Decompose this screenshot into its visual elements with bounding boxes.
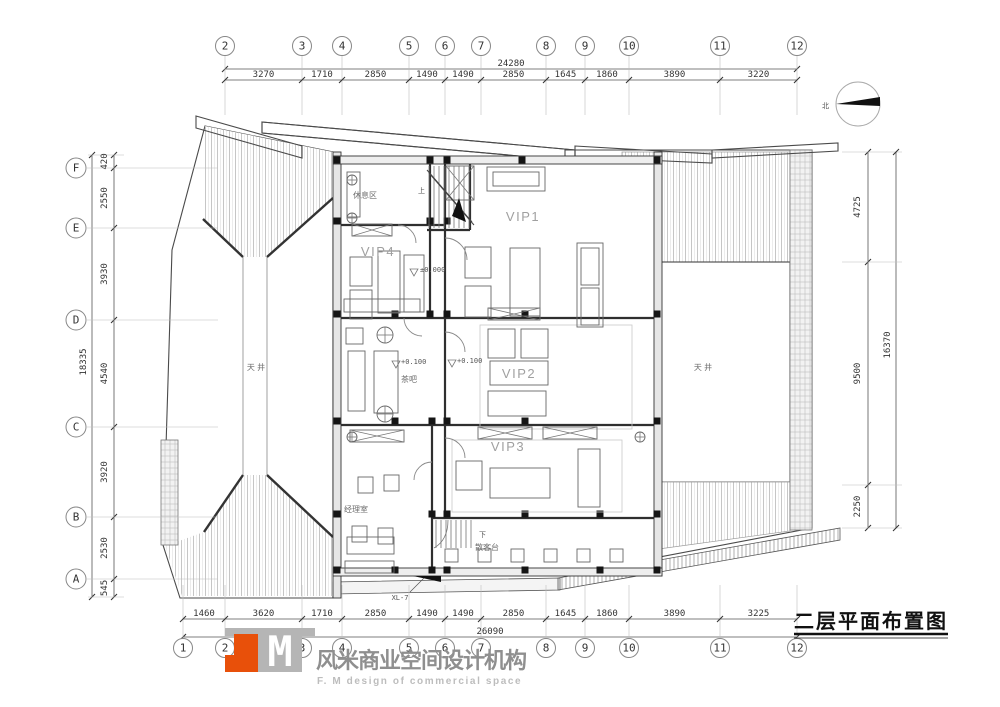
dim-bottom-4: 1490 bbox=[416, 609, 438, 619]
column bbox=[427, 218, 434, 225]
dim-top-0: 3270 bbox=[253, 70, 275, 80]
dim-bottom-overall: 26090 bbox=[476, 627, 503, 637]
axis-label-bottom-12: 12 bbox=[790, 642, 803, 655]
axis-label-top-11: 11 bbox=[713, 40, 726, 53]
dim-bottom-1: 3620 bbox=[253, 609, 275, 619]
dim-left-overall: 18335 bbox=[79, 348, 89, 375]
axis-label-top-4: 4 bbox=[339, 40, 346, 53]
column bbox=[334, 511, 341, 518]
axis-label-top-8: 8 bbox=[543, 40, 550, 53]
axis-label-bottom-8: 8 bbox=[543, 642, 550, 655]
wall-bottom bbox=[333, 568, 662, 576]
axis-label-top-9: 9 bbox=[582, 40, 589, 53]
dim-bottom-9: 3890 bbox=[664, 609, 686, 619]
dim-top-6: 1645 bbox=[555, 70, 577, 80]
column bbox=[444, 157, 451, 164]
column bbox=[334, 567, 341, 574]
dim-right-1: 9500 bbox=[853, 363, 863, 385]
room-label-rest-area: 休息区 bbox=[353, 190, 377, 200]
column bbox=[444, 418, 451, 425]
dim-left-4: 3920 bbox=[100, 461, 110, 483]
dim-top-3: 1490 bbox=[416, 70, 438, 80]
dim-top-4: 1490 bbox=[452, 70, 474, 80]
dim-top-overall: 24280 bbox=[497, 59, 524, 69]
axis-label-top-2: 2 bbox=[222, 40, 229, 53]
dim-bottom-0: 1460 bbox=[193, 609, 215, 619]
column bbox=[597, 567, 604, 574]
dim-top-1: 1710 bbox=[311, 70, 333, 80]
axis-label-left-C: C bbox=[73, 421, 80, 434]
left-roof-edge-band bbox=[161, 440, 178, 545]
column bbox=[519, 157, 526, 164]
column bbox=[392, 311, 399, 318]
axis-label-top-3: 3 bbox=[299, 40, 306, 53]
logo-company-name-cn: 风米商业空间设计机构 bbox=[316, 648, 527, 673]
column bbox=[334, 311, 341, 318]
dim-left-6: 545 bbox=[100, 580, 110, 596]
left-roof bbox=[161, 126, 333, 598]
dim-bottom-2: 1710 bbox=[311, 609, 333, 619]
right-roof-edge-band bbox=[790, 150, 812, 530]
axis-label-bottom-10: 10 bbox=[622, 642, 635, 655]
level-annotation-1: +0.100 bbox=[401, 358, 426, 366]
dim-top-5: 2850 bbox=[503, 70, 525, 80]
room-label-tea-bar: 茶吧 bbox=[401, 374, 417, 384]
axis-label-left-A: A bbox=[73, 573, 80, 586]
column bbox=[392, 418, 399, 425]
column bbox=[427, 157, 434, 164]
dim-left-3: 4540 bbox=[100, 363, 110, 385]
level-annotation-2: +0.100 bbox=[457, 357, 482, 365]
column bbox=[654, 157, 661, 164]
room-label-vip3: VIP3 bbox=[491, 439, 525, 454]
wall-top bbox=[333, 156, 662, 164]
dim-right-0: 4725 bbox=[853, 196, 863, 218]
room-label-vip2: VIP2 bbox=[502, 366, 536, 381]
stair-down-label: 下 bbox=[479, 531, 486, 539]
axis-label-left-B: B bbox=[73, 511, 80, 524]
logo-f-foot bbox=[225, 655, 235, 672]
dim-right-overall: 16370 bbox=[883, 331, 893, 358]
column bbox=[654, 511, 661, 518]
axis-label-bottom-9: 9 bbox=[582, 642, 589, 655]
drawing-title: 二层平面布置图 bbox=[794, 609, 948, 633]
column bbox=[444, 311, 451, 318]
axis-label-top-6: 6 bbox=[442, 40, 449, 53]
dim-top-9: 3220 bbox=[748, 70, 770, 80]
column bbox=[444, 511, 451, 518]
dim-left-1: 2550 bbox=[100, 187, 110, 209]
stair-up-label: 上 bbox=[418, 186, 425, 195]
column bbox=[654, 567, 661, 574]
north-arrow: 北 bbox=[822, 82, 880, 126]
axis-label-left-D: D bbox=[73, 314, 80, 327]
column bbox=[429, 511, 436, 518]
axis-label-top-5: 5 bbox=[406, 40, 413, 53]
room-label-vip1: VIP1 bbox=[506, 209, 540, 224]
room-label-walkin-counter: 散客台 bbox=[475, 542, 499, 552]
dim-right-2: 2250 bbox=[853, 496, 863, 518]
room-label-manager-office: 经理室 bbox=[344, 504, 368, 514]
column bbox=[392, 567, 399, 574]
column bbox=[427, 311, 434, 318]
logo-m-letter: M bbox=[267, 627, 292, 676]
column bbox=[444, 218, 451, 225]
column bbox=[522, 567, 529, 574]
column bbox=[429, 567, 436, 574]
axis-label-bottom-1: 1 bbox=[180, 642, 187, 655]
building: 休息区 VIP1 VIP4 茶吧 VIP2 VIP3 经理室 散客台 ±0.00… bbox=[333, 152, 662, 602]
dim-bottom-6: 2850 bbox=[503, 609, 525, 619]
dim-bottom-7: 1645 bbox=[555, 609, 577, 619]
room-label-vip4: VIP4 bbox=[361, 244, 395, 259]
logo-company-name-en: F. M design of commercial space bbox=[317, 676, 522, 687]
floor-plan-sheet: 休息区 VIP1 VIP4 茶吧 VIP2 VIP3 经理室 散客台 ±0.00… bbox=[0, 0, 1000, 707]
north-arrow-needle bbox=[836, 97, 880, 106]
column bbox=[334, 218, 341, 225]
logo-f-bar bbox=[234, 634, 258, 672]
dim-top-8: 3890 bbox=[664, 70, 686, 80]
column bbox=[429, 418, 436, 425]
dim-left-0: 420 bbox=[100, 153, 110, 169]
dim-left-5: 2530 bbox=[100, 537, 110, 559]
dim-bottom-5: 1490 bbox=[452, 609, 474, 619]
axis-label-left-F: F bbox=[73, 162, 80, 175]
dim-bottom-10: 3225 bbox=[748, 609, 770, 619]
axis-label-left-E: E bbox=[73, 222, 80, 235]
dim-left-2: 3930 bbox=[100, 263, 110, 285]
axis-label-top-7: 7 bbox=[478, 40, 485, 53]
dim-bottom-8: 1860 bbox=[596, 609, 618, 619]
dim-top-7: 1860 bbox=[596, 70, 618, 80]
axis-label-top-10: 10 bbox=[622, 40, 635, 53]
dim-bottom-3: 2850 bbox=[365, 609, 387, 619]
courtyard-left-label: 天 井 bbox=[247, 362, 265, 372]
floorplan-svg: 休息区 VIP1 VIP4 茶吧 VIP2 VIP3 经理室 散客台 ±0.00… bbox=[0, 0, 1000, 707]
axis-label-bottom-11: 11 bbox=[713, 642, 726, 655]
dim-top-2: 2850 bbox=[365, 70, 387, 80]
column bbox=[334, 418, 341, 425]
xl7-label: XL-7 bbox=[392, 594, 409, 602]
courtyard-right-label: 天 井 bbox=[694, 362, 712, 372]
column bbox=[597, 511, 604, 518]
column bbox=[654, 418, 661, 425]
column bbox=[522, 418, 529, 425]
north-label: 北 bbox=[822, 102, 829, 110]
axis-label-bottom-2: 2 bbox=[222, 642, 229, 655]
column bbox=[522, 511, 529, 518]
axis-label-top-12: 12 bbox=[790, 40, 803, 53]
column bbox=[334, 157, 341, 164]
column bbox=[444, 567, 451, 574]
level-annotation-0: ±0.000 bbox=[420, 266, 445, 274]
drawing-title-block: 二层平面布置图 bbox=[794, 609, 948, 638]
column bbox=[654, 311, 661, 318]
